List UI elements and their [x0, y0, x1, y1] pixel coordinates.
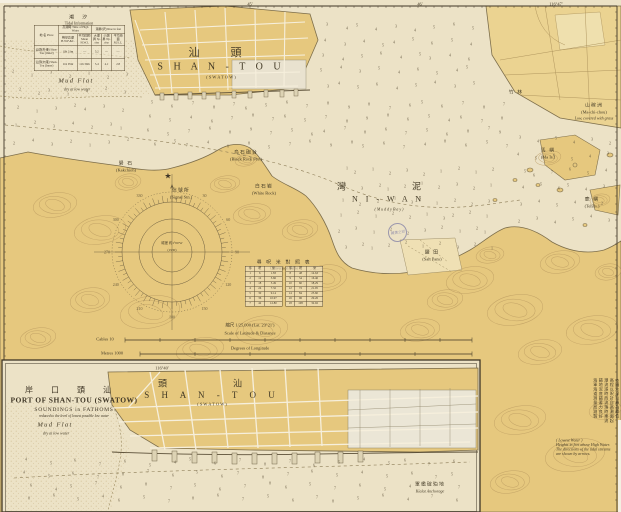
svg-text:30: 30: [203, 193, 207, 198]
map-canvas: 0306090120150180210240270300330: [0, 0, 621, 512]
svg-text:90: 90: [235, 250, 239, 255]
conversion-table: 尋呎米161.832123.663185.494247.325309.14636…: [245, 266, 323, 307]
inset-subtitle-1: SOUNDINGS in FATHOMS: [34, 406, 113, 412]
inset-panel: [2, 360, 480, 512]
lighthouse-star-icon: ★: [164, 172, 171, 181]
inset-title-en: PORT OF SHAN-TOU (SWATOW): [10, 396, 137, 405]
svg-text:120: 120: [225, 282, 231, 287]
tidal-title-zh: 潮 汐: [69, 14, 89, 21]
svg-text:300: 300: [113, 217, 119, 222]
svg-text:180: 180: [169, 315, 175, 320]
chart-notes-zh: 本圖水深以尋為單位 高程以呎計自高潮面起 潮流漲時西流落時東流 錨地泥底錨著力良…: [560, 378, 620, 438]
conversion-title-zh: 尋 呎 米 對 照 表: [257, 259, 312, 266]
svg-text:240: 240: [113, 282, 119, 287]
city-shantou-main: [130, 6, 318, 100]
svg-text:150: 150: [202, 306, 208, 311]
svg-text:270: 270: [104, 250, 110, 255]
svg-text:210: 210: [137, 306, 143, 311]
chart-notes-en: ( Lowest Water )Heights in feet above Hi…: [556, 438, 621, 456]
saltpan-polder: [400, 238, 462, 275]
svg-text:60: 60: [226, 217, 230, 222]
stamp-text: 藏書之印: [390, 229, 405, 236]
tidal-table: 地 名 Place高潮時 Time of High Water潮昇(呎) Ris…: [34, 25, 125, 71]
inset-subtitle-2: reduced to the level of lowest possible …: [39, 414, 109, 418]
nautical-chart-page: 0306090120150180210240270300330: [0, 0, 621, 512]
scan-edge-top: [0, 0, 90, 3]
inset-mudflat-area: [6, 402, 130, 511]
svg-text:330: 330: [137, 193, 143, 198]
inset-title-zh: 岸 口 頭 汕: [25, 385, 119, 396]
